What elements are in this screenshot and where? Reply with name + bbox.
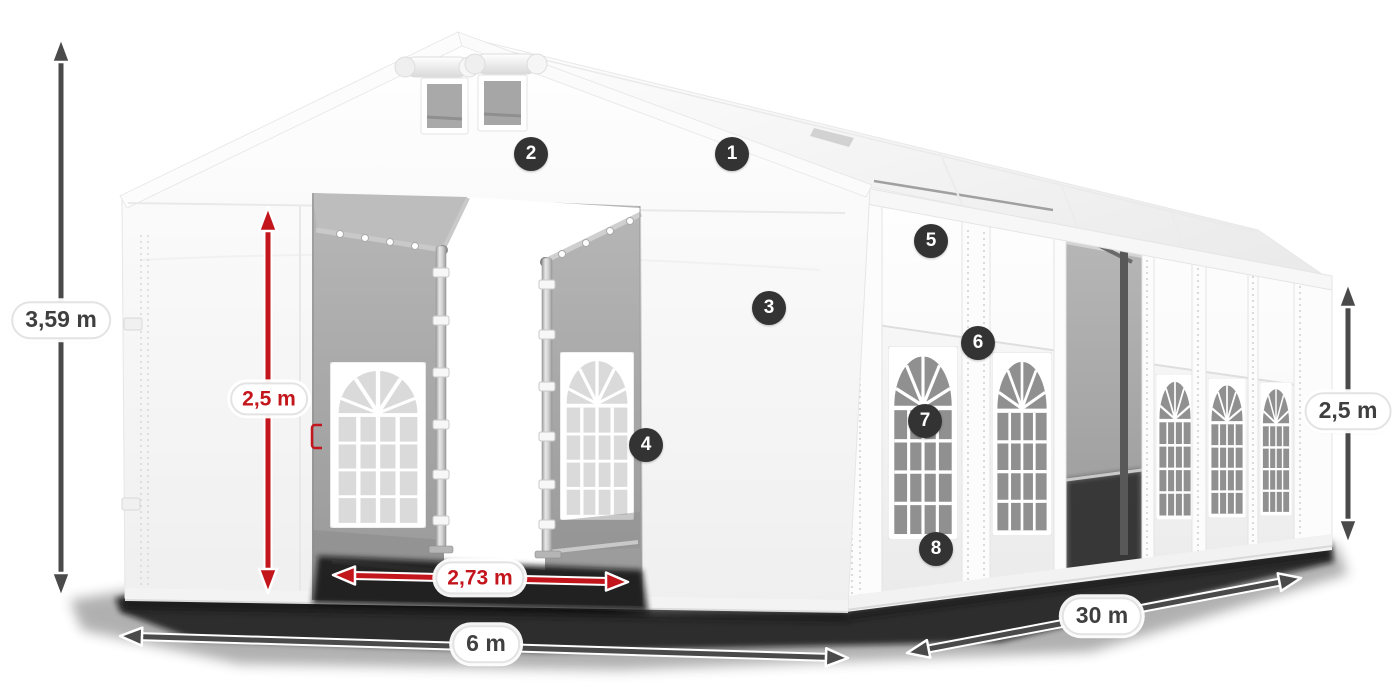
tent-illustration bbox=[0, 0, 1400, 700]
dimension-label-total-height: 3,59 m bbox=[11, 301, 111, 339]
feature-badge-1: 1 bbox=[715, 137, 749, 171]
open-side-section bbox=[1066, 230, 1142, 581]
feature-badge-6: 6 bbox=[961, 326, 995, 360]
interior-pole bbox=[1120, 250, 1128, 555]
feature-badge-7: 7 bbox=[908, 404, 942, 438]
feature-badge-3: 3 bbox=[752, 291, 786, 325]
side-window bbox=[992, 352, 1052, 536]
feature-badge-4: 4 bbox=[629, 428, 663, 462]
side-window bbox=[1156, 374, 1194, 520]
feature-badge-5: 5 bbox=[914, 224, 948, 258]
entrance-right-window bbox=[560, 352, 634, 520]
tent-dimension-diagram: 3,59 m 2,5 m 2,73 m 6 m 30 m 2,5 m 1 2 3… bbox=[0, 0, 1400, 700]
dimension-label-entrance-width: 2,73 m bbox=[435, 561, 524, 594]
strap-buckle bbox=[124, 318, 142, 330]
side-window bbox=[1208, 378, 1246, 518]
dimension-label-length: 30 m bbox=[1062, 597, 1142, 635]
entrance-opening bbox=[312, 193, 648, 612]
feature-badge-2: 2 bbox=[514, 137, 548, 171]
dimension-label-entrance-height: 2,5 m bbox=[230, 382, 308, 415]
side-window bbox=[1260, 382, 1292, 516]
entrance-left-window bbox=[330, 362, 426, 528]
strap-buckle bbox=[122, 498, 140, 510]
dimension-label-width: 6 m bbox=[452, 625, 520, 663]
side-window bbox=[888, 346, 958, 540]
feature-badge-8: 8 bbox=[919, 532, 953, 566]
dimension-label-side-height: 2,5 m bbox=[1305, 392, 1392, 430]
